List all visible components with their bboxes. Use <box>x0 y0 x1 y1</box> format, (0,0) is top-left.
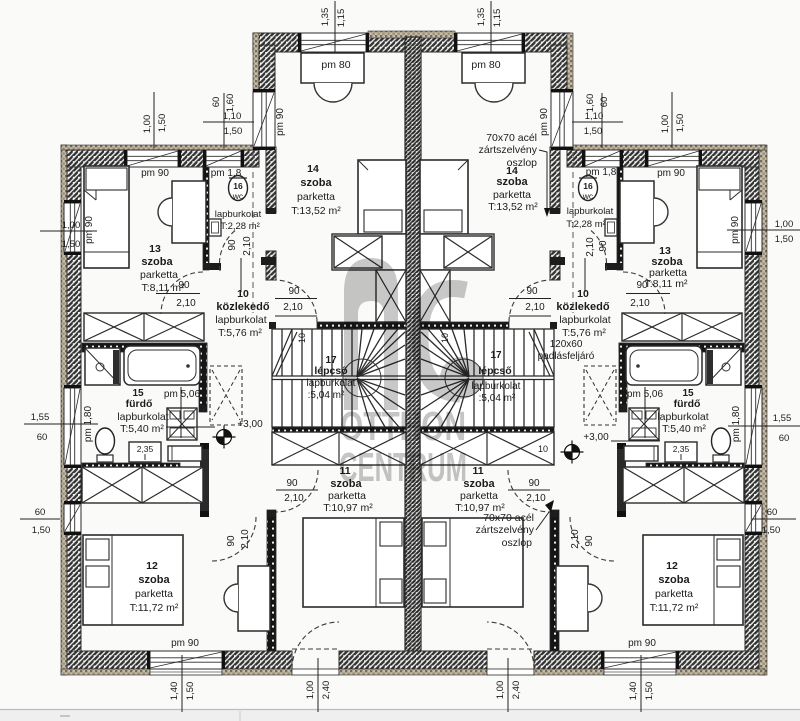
svg-text:17: 17 <box>490 350 502 361</box>
svg-text:90: 90 <box>288 286 300 297</box>
svg-text:1,00: 1,00 <box>62 220 81 231</box>
svg-text:1,50: 1,50 <box>62 239 81 250</box>
svg-text:120x60: 120x60 <box>550 339 583 350</box>
svg-text:60: 60 <box>779 433 790 444</box>
svg-text:fürdő: fürdő <box>126 398 153 410</box>
svg-text::5,04 m²: :5,04 m² <box>308 390 345 401</box>
svg-text:oszlop: oszlop <box>502 537 533 549</box>
svg-text:oszlop: oszlop <box>507 157 538 169</box>
svg-text:90: 90 <box>598 240 609 252</box>
svg-text:parketta: parketta <box>493 189 531 201</box>
svg-text:T:11,72 m²: T:11,72 m² <box>650 602 699 614</box>
svg-text:2,40: 2,40 <box>511 681 522 700</box>
svg-text:11: 11 <box>472 465 483 477</box>
svg-text:wc: wc <box>582 191 594 201</box>
svg-text:1,50: 1,50 <box>762 525 781 536</box>
svg-text:16: 16 <box>583 181 593 191</box>
svg-text:90: 90 <box>178 280 190 291</box>
svg-text:parketta: parketta <box>297 191 335 203</box>
svg-text:pm 1,80: pm 1,80 <box>731 405 742 442</box>
svg-text:2,35: 2,35 <box>137 444 154 454</box>
svg-text:13: 13 <box>149 243 161 255</box>
svg-text:1,00: 1,00 <box>305 681 316 700</box>
svg-text:szoba: szoba <box>138 574 170 586</box>
svg-text:1,55: 1,55 <box>773 413 792 424</box>
svg-text:1,15: 1,15 <box>492 9 503 28</box>
svg-text:12: 12 <box>146 560 158 572</box>
svg-text:10: 10 <box>237 288 249 300</box>
svg-text:pm 80: pm 80 <box>471 59 500 71</box>
svg-text:1,40: 1,40 <box>628 682 639 701</box>
svg-text:16: 16 <box>233 181 243 191</box>
svg-text:1,50: 1,50 <box>675 114 686 133</box>
svg-text:60: 60 <box>599 97 610 108</box>
svg-text:90: 90 <box>528 478 540 489</box>
svg-text:pm 90: pm 90 <box>730 216 741 244</box>
svg-text:pm 90: pm 90 <box>84 216 95 244</box>
svg-text:közlekedő: közlekedő <box>556 301 609 313</box>
svg-text:parketta: parketta <box>140 269 178 281</box>
svg-text:pm 90: pm 90 <box>539 108 550 136</box>
svg-text:2,10: 2,10 <box>525 302 545 313</box>
svg-text:zártszelvény: zártszelvény <box>476 524 535 536</box>
svg-text:pm 90: pm 90 <box>141 168 169 179</box>
svg-text:pm 5,06: pm 5,06 <box>164 389 201 400</box>
svg-text:lépcső: lépcső <box>478 365 511 377</box>
svg-text:T:8,11 m²: T:8,11 m² <box>645 278 688 290</box>
svg-text:1,60: 1,60 <box>585 94 596 113</box>
svg-text:10: 10 <box>297 333 307 343</box>
svg-text:padlásfeljáró: padlásfeljáró <box>538 351 595 362</box>
svg-text:lapburkolat: lapburkolat <box>559 314 610 326</box>
svg-text:1,10: 1,10 <box>223 111 242 122</box>
svg-text:60: 60 <box>35 507 46 518</box>
svg-text:lépcső: lépcső <box>314 365 347 377</box>
svg-text:60: 60 <box>767 507 778 518</box>
svg-text:parketta: parketta <box>460 490 498 502</box>
svg-text:90: 90 <box>526 286 538 297</box>
svg-text:2,10: 2,10 <box>630 298 650 309</box>
svg-text:70x70 acél: 70x70 acél <box>483 512 534 524</box>
svg-text:1,00: 1,00 <box>142 115 153 134</box>
svg-text::5,04 m²: :5,04 m² <box>479 393 516 404</box>
svg-text:szoba: szoba <box>141 256 173 268</box>
svg-text:1,50: 1,50 <box>32 525 51 536</box>
svg-text:T:5,76 m²: T:5,76 m² <box>218 327 262 339</box>
svg-text:T:13,52 m²: T:13,52 m² <box>291 205 341 217</box>
svg-text:10: 10 <box>577 288 589 300</box>
svg-text:60: 60 <box>211 97 222 108</box>
svg-text:zártszelvény: zártszelvény <box>479 144 538 156</box>
svg-text:2,10: 2,10 <box>585 237 596 257</box>
svg-text:1,00: 1,00 <box>775 219 794 230</box>
svg-text:2,10: 2,10 <box>240 529 251 549</box>
svg-text:1,35: 1,35 <box>476 8 487 27</box>
svg-text:lapburkolat: lapburkolat <box>215 314 266 326</box>
svg-text:T:2,28 m²: T:2,28 m² <box>566 219 606 230</box>
svg-text:szoba: szoba <box>300 177 332 189</box>
svg-text:2,35: 2,35 <box>673 444 690 454</box>
svg-text:lapburkolat: lapburkolat <box>567 206 614 217</box>
svg-text:1,50: 1,50 <box>224 126 243 137</box>
svg-text:1,60: 1,60 <box>225 94 236 113</box>
svg-text:1,50: 1,50 <box>775 234 794 245</box>
svg-text:lapburkolat: lapburkolat <box>657 411 708 423</box>
svg-text:pm 1,8: pm 1,8 <box>211 168 242 179</box>
svg-text:pm 90: pm 90 <box>275 108 286 136</box>
svg-text:1,50: 1,50 <box>157 114 168 133</box>
svg-text:90: 90 <box>286 478 298 489</box>
svg-text:lapburkolat: lapburkolat <box>117 411 168 423</box>
svg-text:1,00: 1,00 <box>495 681 506 700</box>
svg-text:70x70 acél: 70x70 acél <box>486 132 537 144</box>
svg-text:60: 60 <box>37 432 48 443</box>
svg-text:pm 80: pm 80 <box>321 59 350 71</box>
svg-text:T:11,72 m²: T:11,72 m² <box>130 602 179 614</box>
svg-text:+3,00: +3,00 <box>237 419 263 430</box>
svg-text:1,50: 1,50 <box>584 126 603 137</box>
svg-text:90: 90 <box>227 239 238 251</box>
svg-text:+3,00: +3,00 <box>583 432 609 443</box>
svg-text:1,55: 1,55 <box>31 412 50 423</box>
svg-text:12: 12 <box>666 560 678 572</box>
svg-text:90: 90 <box>226 535 237 547</box>
svg-text:szoba: szoba <box>463 478 495 490</box>
svg-text:2,10: 2,10 <box>283 302 303 313</box>
svg-text:T:5,40 m²: T:5,40 m² <box>662 423 706 435</box>
svg-text:14: 14 <box>307 163 319 175</box>
svg-text:közlekedő: közlekedő <box>216 301 269 313</box>
svg-text:wc: wc <box>232 191 244 201</box>
svg-text:pm 90: pm 90 <box>171 638 199 649</box>
svg-text:2,10: 2,10 <box>284 493 304 504</box>
svg-text:pm 90: pm 90 <box>628 638 656 649</box>
svg-text:pm 1,8: pm 1,8 <box>586 167 617 178</box>
svg-text:10: 10 <box>440 333 450 343</box>
svg-text:90: 90 <box>584 535 595 547</box>
svg-text:parketta: parketta <box>655 588 693 600</box>
svg-text:pm 1,80: pm 1,80 <box>83 405 94 442</box>
svg-text:1,10: 1,10 <box>585 111 604 122</box>
svg-text:T:2,28 m²: T:2,28 m² <box>220 221 260 232</box>
svg-text:fürdő: fürdő <box>674 398 701 410</box>
svg-text:2,10: 2,10 <box>242 236 253 256</box>
svg-text:parketta: parketta <box>328 490 366 502</box>
svg-text:1,50: 1,50 <box>644 682 655 701</box>
svg-text:2,10: 2,10 <box>526 493 546 504</box>
svg-text:1,35: 1,35 <box>320 8 331 27</box>
svg-text:szoba: szoba <box>496 176 528 188</box>
svg-text:1,50: 1,50 <box>185 682 196 701</box>
svg-text:T:5,40 m²: T:5,40 m² <box>120 423 164 435</box>
svg-text:parketta: parketta <box>135 588 173 600</box>
svg-text:2,10: 2,10 <box>176 298 196 309</box>
svg-text:2,10: 2,10 <box>570 529 581 549</box>
svg-text:CENTRUM: CENTRUM <box>339 444 467 490</box>
svg-text:T:5,76 m²: T:5,76 m² <box>562 327 606 339</box>
svg-text:lapburkolat: lapburkolat <box>215 209 262 220</box>
svg-text:1,15: 1,15 <box>336 9 347 28</box>
svg-text:10: 10 <box>538 444 548 454</box>
svg-text:OTTHON: OTTHON <box>340 403 466 449</box>
svg-text:1,00: 1,00 <box>660 115 671 134</box>
svg-text:T:10,97 m²: T:10,97 m² <box>323 502 373 514</box>
svg-text:T:13,52 m²: T:13,52 m² <box>488 201 538 213</box>
svg-text:pm 90: pm 90 <box>657 168 685 179</box>
svg-text:90: 90 <box>636 280 648 291</box>
svg-text:2,40: 2,40 <box>321 681 332 700</box>
svg-text:szoba: szoba <box>658 574 690 586</box>
svg-text:1,40: 1,40 <box>169 682 180 701</box>
